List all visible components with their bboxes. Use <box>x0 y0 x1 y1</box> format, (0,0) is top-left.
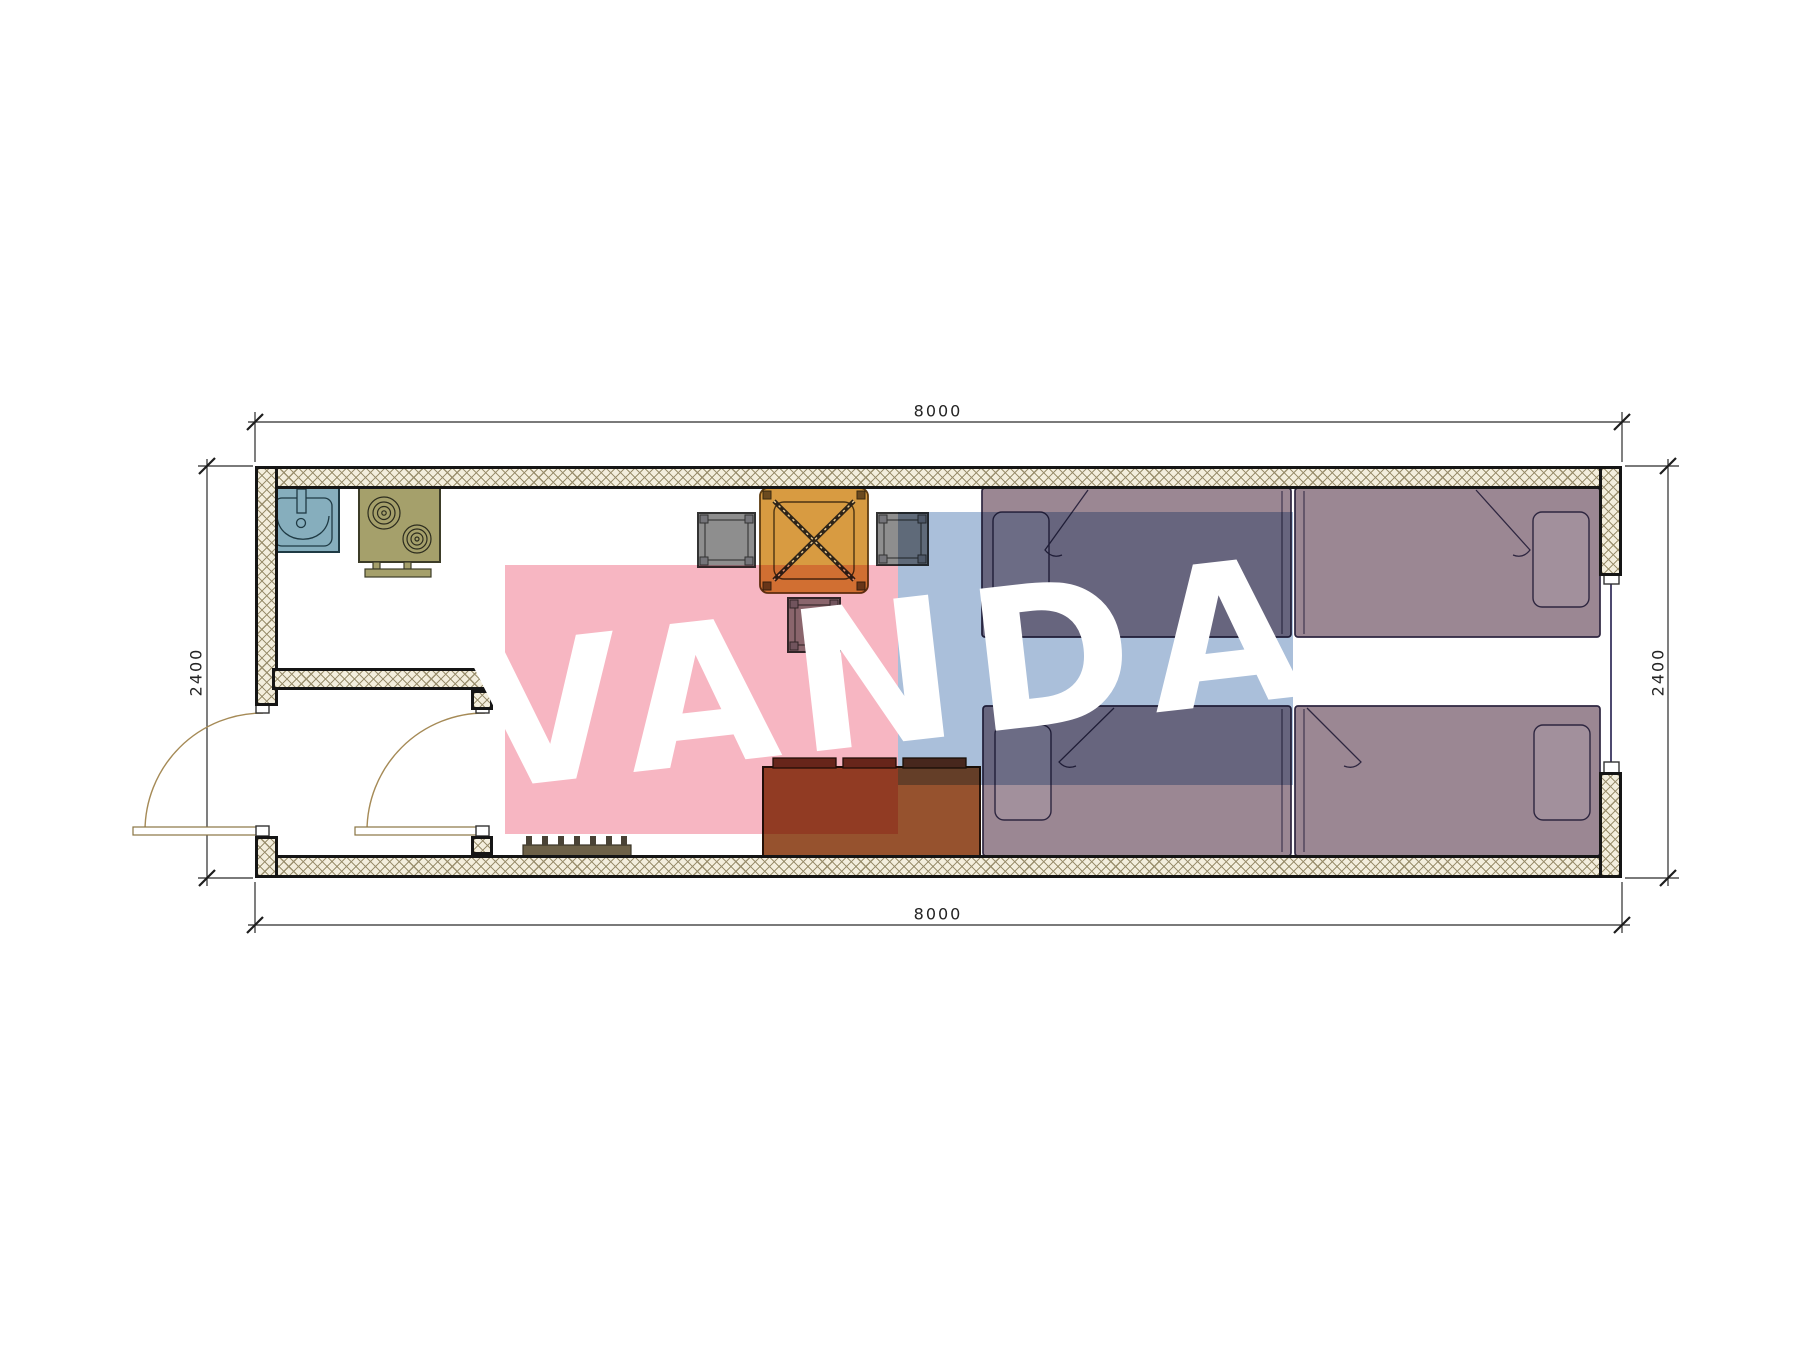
dimension-label-top: 8000 <box>914 402 963 421</box>
bed-bottom-right-icon <box>1295 706 1600 856</box>
floor-plan-canvas: 8000 8000 2400 2400 VANDA <box>0 0 1800 1350</box>
stool-left-icon <box>698 513 755 567</box>
shoe-rack-icon <box>523 836 631 856</box>
window-right-wall <box>1604 573 1619 773</box>
wall-bottom <box>255 855 1622 878</box>
wall-right-upper <box>1599 466 1622 576</box>
wall-vestibule-horizontal <box>272 668 493 690</box>
wall-vestibule-stub-bottom <box>471 836 493 855</box>
bed-top-right-icon <box>1295 488 1600 637</box>
vestibule-door <box>355 703 489 836</box>
wall-left-lower <box>255 836 278 878</box>
entry-door <box>133 703 269 836</box>
dimension-label-right: 2400 <box>1649 648 1668 697</box>
dimension-label-bottom: 8000 <box>914 905 963 924</box>
wall-right-lower <box>1599 772 1622 878</box>
dimension-label-left: 2400 <box>187 648 206 697</box>
stove-icon <box>359 487 440 577</box>
wall-top <box>255 466 1622 489</box>
